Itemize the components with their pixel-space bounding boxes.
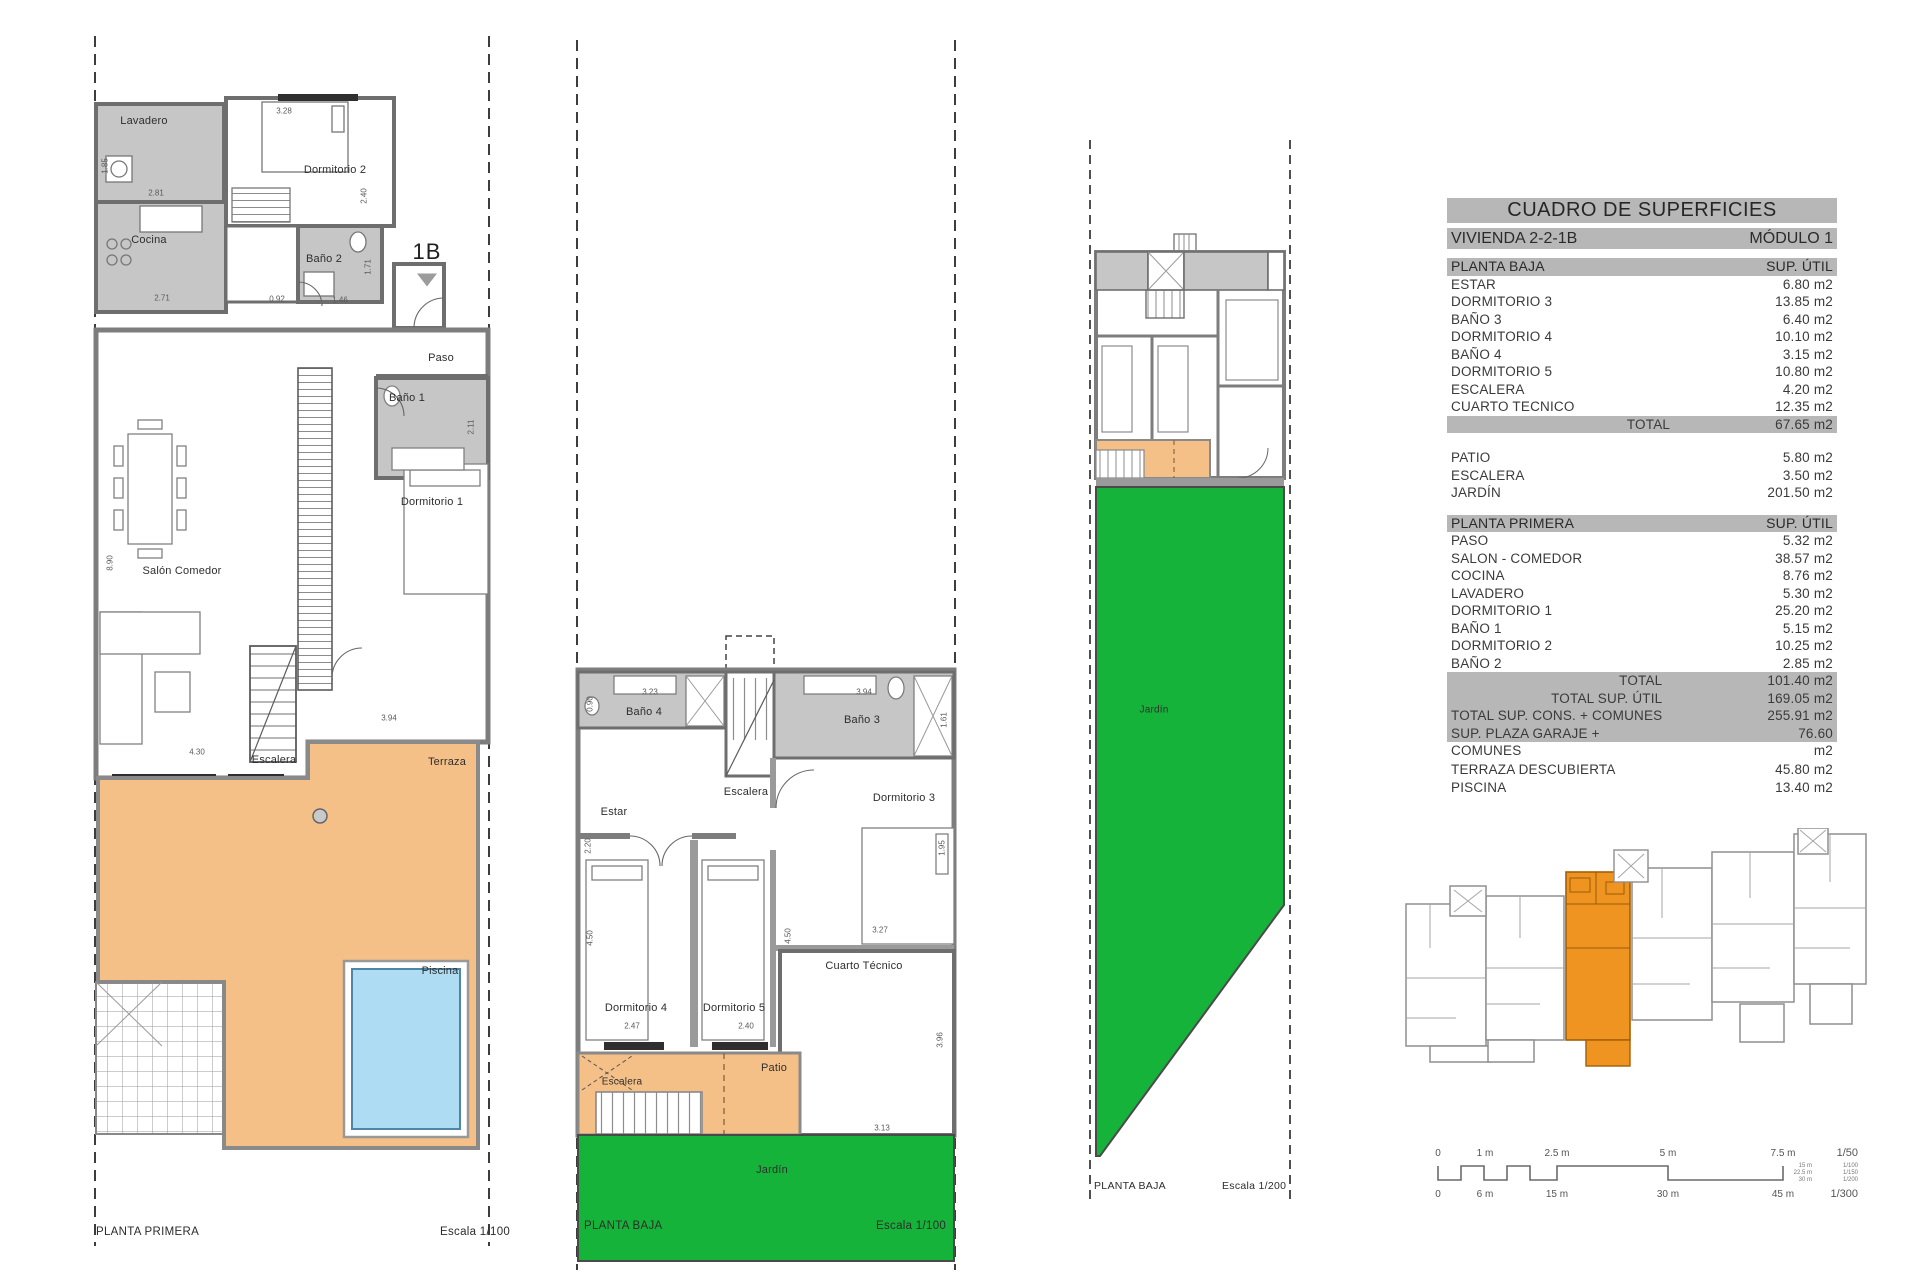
table-row: PISCINA13.40 m2 [1447,779,1837,797]
surface-table: CUADRO DE SUPERFICIES VIVIENDA 2-2-1B MÓ… [1447,198,1837,796]
plan-planta-primera: Lavadero Cocina Dormitorio 2 Baño 2 Paso… [92,36,492,1246]
row-label: LAVADERO [1451,585,1524,603]
cuarto-tecnico-room [780,951,954,1135]
scale-ratio-top: 1/50 [1837,1147,1858,1159]
plan-scale-caption: Escala 1/200 [1222,1180,1286,1192]
row-label: BAÑO 1 [1451,620,1502,638]
site-key-plan [1400,828,1870,1068]
row-label: COCINA [1451,567,1505,585]
dim: 1.71 [364,259,373,275]
dim: 4.50 [784,928,793,944]
row-value: 13.85 m2 [1775,293,1833,311]
table-row: COCINA8.76 m2 [1447,567,1837,585]
table-row: JARDÍN201.50 m2 [1447,484,1837,502]
row-label: ESCALERA [1451,467,1525,485]
room-label-jardin: Jardín [756,1164,788,1176]
table-row: DORMITORIO 410.10 m2 [1447,328,1837,346]
row-value: 45.80 m2 [1775,761,1833,779]
dim: 0.90 [586,696,595,712]
row-label: JARDÍN [1451,484,1501,502]
total-label: TOTAL [1627,416,1775,434]
row-value: 2.85 m2 [1783,655,1833,673]
room-label-salon: Salón Comedor [142,565,221,577]
table-row: BAÑO 43.15 m2 [1447,346,1837,364]
row-label: DORMITORIO 4 [1451,328,1552,346]
row-value: 10.25 m2 [1775,637,1833,655]
row-value: 5.80 m2 [1783,449,1833,467]
dim: 3.96 [936,1032,945,1048]
row-label: DORMITORIO 2 [1451,637,1552,655]
dim: 1.46 [332,296,348,305]
plan-caption: PLANTA BAJA [584,1220,663,1232]
svg-text:30 m: 30 m [1657,1189,1679,1200]
table-unit-row: VIVIENDA 2-2-1B MÓDULO 1 [1447,228,1837,249]
row-value: 6.80 m2 [1783,276,1833,294]
total-label: TOTAL SUP. ÚTIL [1551,690,1767,708]
pool-area [352,969,460,1129]
row-value: 5.32 m2 [1783,532,1833,550]
scale-bar-drawing: 0 1 m 2.5 m 5 m 7.5 m 1/50 15 m 1/100 22… [1420,1140,1860,1210]
row-value: 12.35 m2 [1775,398,1833,416]
svg-text:2.5 m: 2.5 m [1544,1148,1569,1159]
room-label-terraza: Terraza [428,756,466,768]
room-label-bano4: Baño 4 [626,706,662,718]
room-label-estar: Estar [601,806,628,818]
table-row: ESCALERA4.20 m2 [1447,381,1837,399]
dim: 4.30 [189,748,205,757]
unit-marker-triangle-icon [417,274,437,287]
scale-bar-mid-ticks: 15 m 1/100 22.5 m 1/150 30 m 1/200 [1794,1163,1859,1183]
row-value: 10.10 m2 [1775,328,1833,346]
room-label-dormitorio2: Dormitorio 2 [304,164,366,176]
exterior-stair [96,982,224,1134]
dim: 3.94 [856,688,872,697]
section-unit: SUP. ÚTIL [1766,515,1833,533]
total-label: SUP. PLAZA GARAJE + COMUNES [1451,725,1776,743]
section-unit: SUP. ÚTIL [1766,258,1833,276]
svg-text:6 m: 6 m [1477,1189,1494,1200]
svg-text:15 m: 15 m [1546,1189,1568,1200]
dim: 2.40 [738,1022,754,1031]
patio-stair-treads [1096,450,1144,478]
highlighted-unit [1566,872,1630,1040]
section-label: PLANTA BAJA [1451,258,1545,276]
svg-text:5 m: 5 m [1660,1148,1677,1159]
room-label-dormitorio1: Dormitorio 1 [401,496,463,508]
room-label-bano3: Baño 3 [844,714,880,726]
row-label: DORMITORIO 5 [1451,363,1552,381]
garden-area [578,1135,954,1261]
room-label-piscina: Piscina [422,965,459,977]
room-label-bano1: Baño 1 [389,392,425,404]
svg-text:7.5 m: 7.5 m [1770,1148,1795,1159]
dim: 0.92 [269,295,285,304]
section-header-planta-baja: PLANTA BAJA SUP. ÚTIL [1447,258,1837,276]
room-label-cocina: Cocina [131,234,166,246]
scale-bar-bottom-ticks: 0 6 m 15 m 30 m 45 m [1435,1189,1794,1200]
table-row: TERRAZA DESCUBIERTA45.80 m2 [1447,761,1837,779]
row-value: 10.80 m2 [1775,363,1833,381]
row-label: SALON - COMEDOR [1451,550,1582,568]
dim: 2.20 [584,838,593,854]
total-label: TOTAL [1619,672,1767,690]
section-header-planta-primera: PLANTA PRIMERA SUP. ÚTIL [1447,515,1837,533]
row-value: 5.15 m2 [1783,620,1833,638]
svg-text:15 m: 15 m [1799,1163,1812,1169]
garden-area [1096,487,1284,1156]
totals-block: TOTAL101.40 m2 TOTAL SUP. ÚTIL169.05 m2 … [1447,672,1837,742]
table-row: BAÑO 36.40 m2 [1447,311,1837,329]
room-label-dormitorio4: Dormitorio 4 [605,1002,667,1014]
row-label: DORMITORIO 3 [1451,293,1552,311]
graphic-scale-bar: 0 1 m 2.5 m 5 m 7.5 m 1/50 15 m 1/100 22… [1420,1140,1860,1210]
svg-text:22.5 m: 22.5 m [1794,1170,1812,1176]
plan-planta-primera-drawing [92,36,492,1246]
room-label-paso: Paso [428,352,454,364]
terrace-drain [313,809,327,823]
room-label-bano2: Baño 2 [306,253,342,265]
highlighted-unit-annex [1586,1040,1630,1066]
dim: 3.13 [874,1124,890,1133]
total-value: 255.91 m2 [1767,707,1833,725]
row-value: 3.15 m2 [1783,346,1833,364]
table-total-row: TOTAL SUP. ÚTIL169.05 m2 [1447,690,1837,708]
dim: 1.61 [940,712,949,728]
table-row: BAÑO 22.85 m2 [1447,655,1837,673]
table-row: BAÑO 15.15 m2 [1447,620,1837,638]
dim: 8.90 [106,555,115,571]
plan-caption: PLANTA BAJA [1094,1180,1166,1192]
plan-scale-caption: Escala 1/100 [440,1226,510,1238]
row-value: 4.20 m2 [1783,381,1833,399]
table-row: PATIO5.80 m2 [1447,449,1837,467]
table-row: PASO5.32 m2 [1447,532,1837,550]
room-label-patio: Patio [761,1062,787,1074]
row-value: 13.40 m2 [1775,779,1833,797]
row-label: BAÑO 3 [1451,311,1502,329]
dim: 2.47 [624,1022,640,1031]
dim: 3.94 [381,714,397,723]
plan-garden-drawing [1088,140,1292,1202]
scale-ratio-bottom: 1/300 [1830,1188,1858,1200]
table-row: DORMITORIO 125.20 m2 [1447,602,1837,620]
garden-wall [1096,478,1284,487]
row-value: 8.76 m2 [1783,567,1833,585]
row-label: ESCALERA [1451,381,1525,399]
row-label: PATIO [1451,449,1491,467]
table-total-row: SUP. PLAZA GARAJE + COMUNES76.60 m2 [1447,725,1837,743]
stair-treads [726,678,774,740]
dim: 2.81 [148,189,164,198]
unit-name: VIVIENDA 2-2-1B [1451,228,1577,249]
table-row: DORMITORIO 510.80 m2 [1447,363,1837,381]
table-total-row: TOTAL SUP. CONS. + COMUNES255.91 m2 [1447,707,1837,725]
total-value: 101.40 m2 [1767,672,1833,690]
room-label-lavadero: Lavadero [120,115,167,127]
row-value: 201.50 m2 [1767,484,1833,502]
table-title: CUADRO DE SUPERFICIES [1447,198,1837,223]
room-label-dormitorio5: Dormitorio 5 [703,1002,765,1014]
room-label-escalera-bottom: Escalera [602,1077,643,1088]
room-label-cuarto-tecnico: Cuarto Técnico [825,960,902,972]
table-row: ESCALERA3.50 m2 [1447,467,1837,485]
module-name: MÓDULO 1 [1749,228,1833,249]
total-label: TOTAL SUP. CONS. + COMUNES [1451,707,1767,725]
total-value: 67.65 m2 [1775,416,1833,434]
row-label: PISCINA [1451,779,1506,797]
table-row: ESTAR6.80 m2 [1447,276,1837,294]
scale-bar-top-ticks: 0 1 m 2.5 m 5 m 7.5 m [1435,1148,1795,1159]
row-value: 5.30 m2 [1783,585,1833,603]
row-label: BAÑO 4 [1451,346,1502,364]
dim: 2.11 [467,420,476,435]
dim: 3.28 [276,107,292,116]
row-value: 38.57 m2 [1775,550,1833,568]
room-label-dormitorio3: Dormitorio 3 [873,792,935,804]
row-value: 6.40 m2 [1783,311,1833,329]
row-label: BAÑO 2 [1451,655,1502,673]
svg-text:1 m: 1 m [1477,1148,1494,1159]
plan-planta-baja: Baño 4 Escalera Baño 3 Estar Dormitorio … [574,40,958,1270]
row-label: ESTAR [1451,276,1496,294]
svg-text:0: 0 [1435,1189,1441,1200]
dim: 1.95 [938,840,947,856]
entry-stair [1174,234,1196,252]
svg-text:0: 0 [1435,1148,1441,1159]
room-label-escalera-top: Escalera [724,786,768,798]
table-total-row: TOTAL101.40 m2 [1447,672,1837,690]
dim: 2.71 [154,294,170,303]
dim: 3.27 [872,926,888,935]
room-label-escalera: Escalera [252,754,296,766]
plan-scale-caption: Escala 1/100 [876,1220,946,1232]
total-value: 76.60 m2 [1776,725,1833,743]
dim: 3.23 [642,688,658,697]
row-label: CUARTO TECNICO [1451,398,1575,416]
row-value: 25.20 m2 [1775,602,1833,620]
section-label: PLANTA PRIMERA [1451,515,1574,533]
table-row: DORMITORIO 313.85 m2 [1447,293,1837,311]
svg-text:1/200: 1/200 [1843,1177,1859,1183]
row-label: PASO [1451,532,1488,550]
row-label: DORMITORIO 1 [1451,602,1552,620]
row-label: TERRAZA DESCUBIERTA [1451,761,1616,779]
table-row: SALON - COMEDOR38.57 m2 [1447,550,1837,568]
stair-projection-dashed [726,636,774,670]
room-label-jardin: Jardín [1140,705,1169,716]
unit-marker: 1B [413,239,442,265]
svg-text:1/100: 1/100 [1843,1163,1859,1169]
plan-planta-baja-garden: Jardín PLANTA BAJA Escala 1/200 [1088,140,1292,1202]
table-row: CUARTO TECNICO12.35 m2 [1447,398,1837,416]
blueprint-sheet: Lavadero Cocina Dormitorio 2 Baño 2 Paso… [0,0,1920,1280]
table-total-row: TOTAL 67.65 m2 [1447,416,1837,434]
scale-bar-steps [1438,1166,1783,1180]
row-value: 3.50 m2 [1783,467,1833,485]
dim: 2.40 [360,188,369,204]
svg-text:30 m: 30 m [1799,1177,1812,1183]
table-row: DORMITORIO 210.25 m2 [1447,637,1837,655]
plan-caption: PLANTA PRIMERA [96,1226,199,1238]
total-value: 169.05 m2 [1767,690,1833,708]
table-row: LAVADERO5.30 m2 [1447,585,1837,603]
patio-stair-treads [596,1092,702,1134]
dim: 1.85 [101,158,110,174]
svg-text:45 m: 45 m [1772,1189,1794,1200]
svg-text:1/150: 1/150 [1843,1170,1859,1176]
site-key-plan-drawing [1400,828,1870,1068]
dim: 4.50 [586,930,595,946]
